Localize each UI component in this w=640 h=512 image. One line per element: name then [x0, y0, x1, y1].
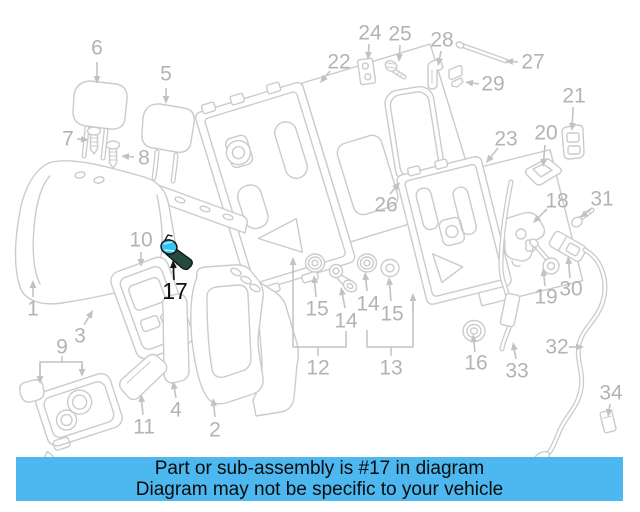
pointer-arrow: [572, 107, 573, 123]
part-label-26: 26: [374, 194, 397, 217]
part-label-3: 3: [74, 325, 86, 348]
pointer-arrowhead: [362, 272, 369, 280]
part-label-8: 8: [138, 147, 150, 170]
part-label-12: 12: [306, 357, 329, 380]
part-label-11: 11: [133, 416, 155, 439]
pointer-arrow: [315, 283, 316, 297]
info-banner: Part or sub-assembly is #17 in diagram D…: [16, 457, 623, 501]
part-label-4: 4: [170, 399, 182, 422]
banner-line1: Part or sub-assembly is #17 in diagram: [155, 458, 484, 479]
pointer-arrow: [174, 389, 176, 398]
part-label-5: 5: [160, 63, 172, 86]
part-label-29: 29: [481, 73, 504, 96]
part-label-19: 19: [534, 286, 557, 309]
guide-screw-8-drawing: [107, 141, 120, 168]
part-label-6: 6: [91, 37, 103, 60]
part-label-28: 28: [430, 29, 453, 52]
parts-diagram-page: 6578139101711422224252827292120232618311…: [0, 0, 640, 512]
lever-9-drawing: [20, 380, 44, 402]
exploded-parts-diagram: 6578139101711422224252827292120232618311…: [0, 0, 640, 512]
part-label-31: 31: [590, 188, 613, 211]
clip-29-drawing: [449, 66, 463, 87]
part-label-18: 18: [545, 190, 568, 213]
pointer-arrow: [390, 285, 391, 301]
banner-line2: Diagram may not be specific to your vehi…: [136, 479, 504, 500]
part-label-15: 15: [380, 303, 403, 326]
trim-11-drawing: [120, 355, 167, 400]
pointer-arrow: [473, 83, 479, 84]
part-label-10: 10: [129, 229, 152, 252]
screw-31-drawing: [570, 210, 592, 229]
seatback-2-drawing: [191, 265, 299, 416]
pointer-arrow: [214, 406, 215, 417]
pointer-arrow: [474, 342, 475, 352]
rod-27-drawing: [455, 41, 506, 61]
pointer-arrow: [342, 295, 345, 308]
pointer-arrowhead: [410, 293, 417, 301]
pointer-arrowhead: [121, 153, 129, 160]
grommet-14b-drawing: [358, 254, 377, 272]
part-label-2: 2: [209, 419, 221, 442]
pointer-arrow: [368, 44, 369, 52]
bracket-24-drawing: [357, 58, 375, 85]
part-label-17: 17: [162, 278, 188, 304]
striker-21-drawing: [562, 125, 584, 159]
part-label-30: 30: [559, 278, 582, 301]
pointer-arrowhead: [163, 96, 170, 104]
part-label-25: 25: [388, 23, 411, 46]
part-label-9: 9: [56, 336, 68, 359]
part-label-21: 21: [562, 85, 585, 108]
pointer-arrow: [609, 404, 610, 409]
pointer-arrowhead: [79, 369, 86, 377]
part-label-20: 20: [534, 122, 557, 145]
part-label-14: 14: [356, 293, 380, 316]
pointer-arrow: [514, 350, 516, 359]
bolt-14a-drawing: [330, 265, 359, 295]
part-label-1: 1: [27, 298, 39, 321]
armrest-tray-9-drawing: [20, 371, 130, 469]
part-label-13: 13: [379, 357, 402, 380]
pointer-arrowhead: [386, 277, 393, 285]
part-label-15: 15: [305, 298, 328, 321]
part-label-7: 7: [62, 128, 74, 151]
guide-screw-7-drawing: [88, 127, 101, 154]
part-label-33: 33: [505, 360, 528, 383]
grommet-15b-drawing: [381, 260, 399, 277]
part-label-16: 16: [464, 352, 487, 375]
pointer-arrow: [366, 280, 367, 291]
pointer-arrowhead: [465, 80, 473, 87]
pointer-arrow: [440, 51, 441, 58]
pointer-arrow: [142, 402, 143, 415]
part-label-32: 32: [545, 336, 568, 359]
bracket-line: [40, 362, 82, 374]
part-label-24: 24: [358, 22, 382, 45]
part-label-23: 23: [494, 128, 517, 151]
part-label-22: 22: [327, 51, 350, 74]
pointer-arrow: [399, 45, 400, 54]
part-label-27: 27: [521, 51, 544, 74]
grommet-15a-drawing: [306, 254, 325, 272]
pointer-arrow: [544, 276, 545, 286]
part-label-34: 34: [599, 382, 623, 405]
pointer-arrowhead: [511, 342, 518, 350]
part-label-14: 14: [334, 310, 358, 333]
